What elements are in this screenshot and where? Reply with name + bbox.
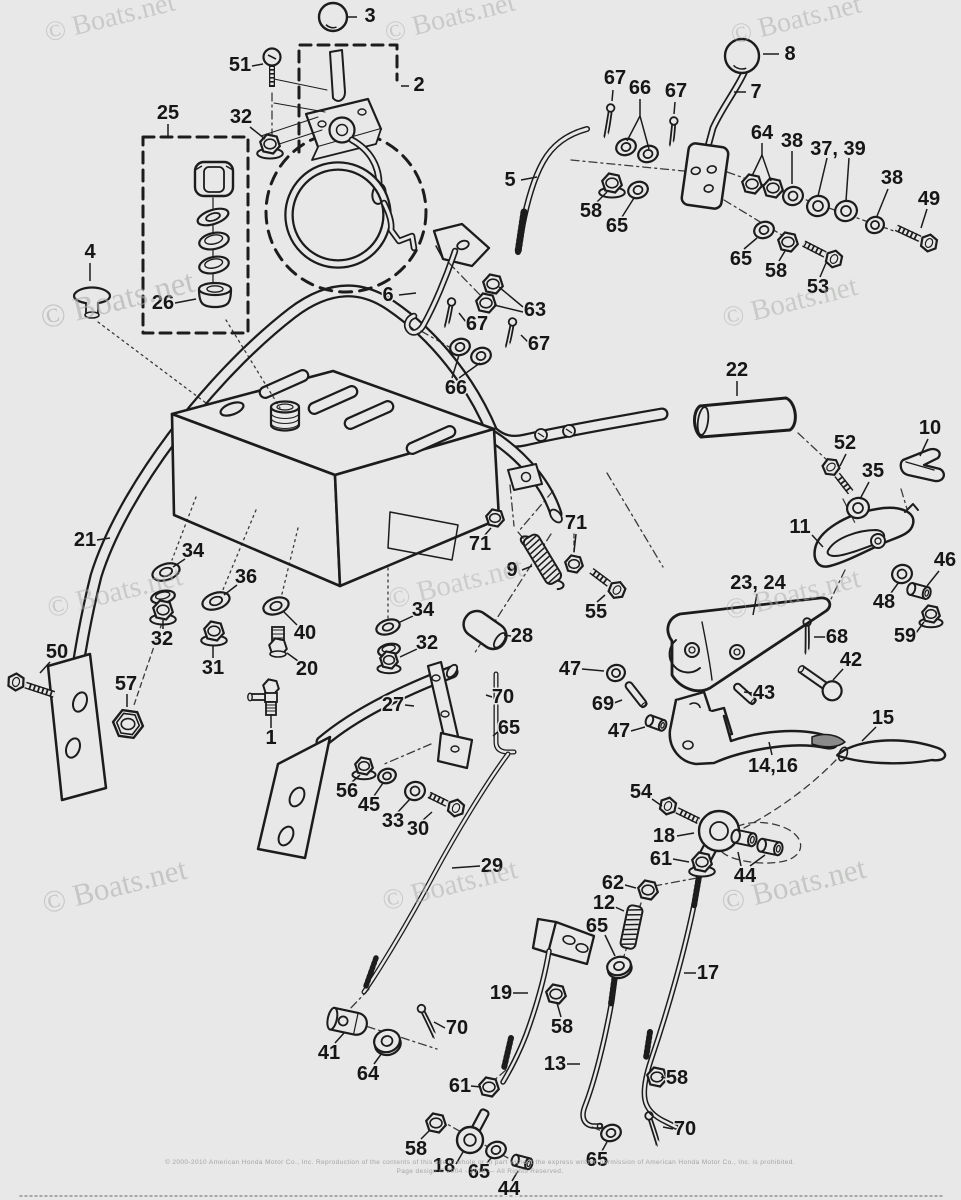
part-flangenut <box>599 174 625 198</box>
part-pin <box>444 298 456 329</box>
callout-leader <box>625 885 636 888</box>
callout-32: 32 <box>230 106 252 128</box>
callout-58: 58 <box>765 260 787 282</box>
diagram-canvas: 351225324268767666755865643837, 39384965… <box>0 0 961 1200</box>
rod-13 <box>583 970 616 1129</box>
part-bolt <box>657 795 702 828</box>
part-bolt <box>800 236 845 270</box>
callout-61: 61 <box>650 848 672 870</box>
part-fatpin <box>624 681 648 709</box>
part-pin <box>505 318 517 349</box>
part-bignut <box>113 710 143 738</box>
part-washer <box>890 562 915 585</box>
callout-leader <box>631 727 645 731</box>
part-nut <box>479 1078 499 1097</box>
callout-44: 44 <box>498 1178 521 1200</box>
callout-41: 41 <box>318 1042 340 1064</box>
callout-leader <box>744 692 752 693</box>
callout-leader <box>400 649 417 657</box>
watermark: © Boats.net <box>728 0 865 51</box>
bracket-19 <box>533 919 594 964</box>
callout-65: 65 <box>606 215 628 237</box>
part-nut <box>778 233 798 252</box>
callout-leader <box>762 155 771 181</box>
part-washer <box>374 617 401 638</box>
callout-28: 28 <box>511 625 533 647</box>
callout-leader <box>840 454 846 466</box>
callout-1: 1 <box>265 727 276 749</box>
callout-25: 25 <box>157 102 179 124</box>
part-ball <box>319 3 347 31</box>
left-bracket-plate <box>48 654 106 800</box>
callout-leader <box>405 705 414 706</box>
callout-56: 56 <box>336 780 358 802</box>
callout-30: 30 <box>407 818 429 840</box>
callout-7: 7 <box>750 81 761 103</box>
watermark: © Boats.net <box>37 264 198 337</box>
part-washer <box>614 136 638 157</box>
rod-19 <box>503 951 549 1082</box>
callout-leader <box>877 189 888 216</box>
callout-leader <box>860 482 869 499</box>
callout-67: 67 <box>665 80 687 102</box>
callout-15: 15 <box>872 707 894 729</box>
callout-leader <box>250 127 265 139</box>
callout-4: 4 <box>84 241 96 263</box>
part-screw <box>264 49 281 88</box>
part-flangenut <box>352 757 375 779</box>
callout-leader <box>398 616 413 623</box>
callout-13: 13 <box>544 1053 566 1075</box>
callout-leader <box>605 935 615 956</box>
callout-43: 43 <box>753 682 775 704</box>
callout-32: 32 <box>151 628 173 650</box>
part-flangenut <box>201 622 227 646</box>
callout-leader <box>499 287 523 307</box>
callout-59: 59 <box>894 625 916 647</box>
callout-68: 68 <box>826 626 848 648</box>
callout-leader <box>846 158 849 201</box>
callout-36: 36 <box>235 566 257 588</box>
callout-leader <box>677 833 694 836</box>
callout-66: 66 <box>445 377 467 399</box>
callout-11: 11 <box>789 516 810 538</box>
callout-70: 70 <box>446 1017 468 1039</box>
callout-51: 51 <box>229 54 251 76</box>
part-nut <box>486 509 504 526</box>
part-bushing <box>756 838 783 856</box>
rod-29 <box>364 674 514 992</box>
callout-leader <box>582 669 604 671</box>
part-nut <box>763 179 783 198</box>
callout-10: 10 <box>919 417 941 439</box>
part-fitting <box>269 627 287 657</box>
part-washer <box>605 663 627 684</box>
part-nut <box>742 175 762 194</box>
part-bolt <box>819 455 857 497</box>
lever-7-plate <box>681 73 744 209</box>
callout-leader <box>252 64 263 66</box>
callout-leader <box>615 907 624 911</box>
callout-40: 40 <box>294 622 316 644</box>
callout-47: 47 <box>559 658 581 680</box>
part-nut <box>638 881 658 900</box>
callout-70: 70 <box>674 1118 696 1140</box>
callout-17: 17 <box>697 962 719 984</box>
callout-27: 27 <box>382 694 404 716</box>
callout-3: 3 <box>364 5 375 27</box>
callout-45: 45 <box>358 794 380 816</box>
callout-71: 71 <box>469 533 491 555</box>
callout-65: 65 <box>730 248 752 270</box>
callout-34: 34 <box>182 540 205 562</box>
part-coupler <box>326 1007 369 1037</box>
part-nut <box>565 555 583 572</box>
callout-21: 21 <box>74 529 96 551</box>
callout-leader <box>399 293 416 295</box>
callout-71: 71 <box>565 512 587 534</box>
callout-47: 47 <box>608 720 630 742</box>
callout-48: 48 <box>873 591 895 613</box>
part-bolt <box>587 564 629 601</box>
callout-62: 62 <box>602 872 624 894</box>
callout-58: 58 <box>405 1138 427 1160</box>
callout-58: 58 <box>666 1067 688 1089</box>
callout-leader <box>818 158 827 196</box>
part-spring <box>520 530 568 594</box>
callout-leader <box>557 1003 561 1017</box>
part-washer <box>376 767 397 786</box>
part-washer <box>781 184 806 207</box>
callout-6: 6 <box>382 284 393 306</box>
watermark: © Boats.net <box>719 270 861 334</box>
footer-copyright-line2: Page design © 2004 - 2010 — All Rights R… <box>396 1167 563 1175</box>
part-washer <box>484 1139 508 1160</box>
part-clevis <box>794 660 846 704</box>
part-petcock <box>248 679 279 715</box>
blade-15 <box>837 740 945 763</box>
callout-leader <box>820 263 826 277</box>
callout-20: 20 <box>296 658 318 680</box>
part-bushing <box>644 714 668 732</box>
callout-12: 12 <box>593 892 615 914</box>
part-bolt <box>893 220 940 254</box>
callout-65: 65 <box>498 717 520 739</box>
part-washer <box>626 179 650 200</box>
callout-22: 22 <box>726 359 748 381</box>
callout-leader <box>862 727 876 741</box>
callout-69: 69 <box>592 693 614 715</box>
part-washer <box>752 219 776 240</box>
callout-leader <box>927 571 939 586</box>
part-disc <box>198 254 231 276</box>
handlebar-tab-bracket <box>508 464 542 490</box>
callout-46: 46 <box>934 549 956 571</box>
callout-67: 67 <box>466 313 488 335</box>
part-disc <box>198 230 231 252</box>
part-washer <box>469 345 493 366</box>
callout-leader <box>614 700 622 703</box>
callout-50: 50 <box>46 641 68 663</box>
watermark: © Boats.net <box>42 0 179 49</box>
callout-38: 38 <box>781 130 803 152</box>
part-nut <box>483 275 503 294</box>
part-screwhead <box>563 425 575 437</box>
callout-leader <box>434 1022 445 1028</box>
part-sleeve <box>459 606 512 654</box>
callout-32: 32 <box>416 632 438 654</box>
part-pin <box>416 1004 440 1039</box>
part-washer <box>403 779 428 802</box>
callout-64: 64 <box>357 1063 380 1085</box>
callout-70: 70 <box>492 686 514 708</box>
callout-leader <box>494 305 523 312</box>
part-grommet <box>195 162 233 196</box>
callout-leader <box>752 155 762 176</box>
callout-52: 52 <box>834 432 856 454</box>
part-thickwasher <box>605 954 634 980</box>
callout-19: 19 <box>490 982 512 1004</box>
part-washer <box>196 205 231 228</box>
callout-leader <box>627 116 640 141</box>
callout-49: 49 <box>918 188 940 210</box>
callout-33: 33 <box>382 810 404 832</box>
callout-leader <box>674 102 675 114</box>
callout-leader <box>921 209 927 228</box>
shift-rod-5 <box>518 129 587 252</box>
grip-22 <box>694 398 795 437</box>
callout-35: 35 <box>862 460 884 482</box>
right-bracket-plate <box>258 737 330 858</box>
watermark: © Boats.net <box>382 0 519 49</box>
part-washer <box>804 193 831 219</box>
callout-37-39: 37, 39 <box>810 138 866 160</box>
callout-58: 58 <box>580 200 602 222</box>
callout-55: 55 <box>585 601 607 623</box>
callout-8: 8 <box>784 43 795 65</box>
part-nut <box>476 294 496 313</box>
part-eyelink <box>457 1108 490 1153</box>
callout-5: 5 <box>504 169 515 191</box>
part-pin <box>669 117 678 146</box>
part-pin <box>603 104 615 138</box>
callout-14-16: 14,16 <box>748 755 798 777</box>
part-cup <box>199 283 231 307</box>
callout-leader <box>673 859 689 862</box>
callout-leader <box>612 90 613 101</box>
callout-61: 61 <box>449 1075 471 1097</box>
callout-leader <box>522 566 532 570</box>
watermark: © Boats.net <box>39 851 191 921</box>
callout-leader <box>471 1086 481 1087</box>
part-nut <box>546 985 566 1004</box>
fuel-tank <box>172 368 499 586</box>
parts-diagram-page: 351225324268767666755865643837, 39384965… <box>0 0 961 1200</box>
callout-67: 67 <box>528 333 550 355</box>
part-flangenut <box>257 135 283 159</box>
callout-63: 63 <box>524 299 546 321</box>
callout-58: 58 <box>551 1016 573 1038</box>
callout-42: 42 <box>840 649 862 671</box>
fuel-filler-cap <box>271 402 299 431</box>
callout-64: 64 <box>751 122 774 144</box>
callout-57: 57 <box>115 673 137 695</box>
footer-copyright-line1: © 2000-2010 American Honda Motor Co., In… <box>165 1158 795 1166</box>
bracket-10 <box>901 449 944 481</box>
callout-leader <box>640 116 649 149</box>
throttle-assembly-2 <box>261 45 426 292</box>
callout-66: 66 <box>629 77 651 99</box>
callout-2: 2 <box>413 74 424 96</box>
part-thickwasher <box>372 1027 404 1058</box>
callout-38: 38 <box>881 167 903 189</box>
part-washer <box>832 198 859 224</box>
callout-31: 31 <box>202 657 224 679</box>
callout-65: 65 <box>586 915 608 937</box>
callout-54: 54 <box>630 781 653 803</box>
watermark: © Boats.net <box>379 853 521 917</box>
callout-67: 67 <box>604 67 626 89</box>
part-bolt <box>425 787 467 818</box>
part-nut <box>426 1114 446 1133</box>
part-washer <box>864 215 886 236</box>
callout-18: 18 <box>653 825 675 847</box>
part-screwhead <box>535 429 547 441</box>
